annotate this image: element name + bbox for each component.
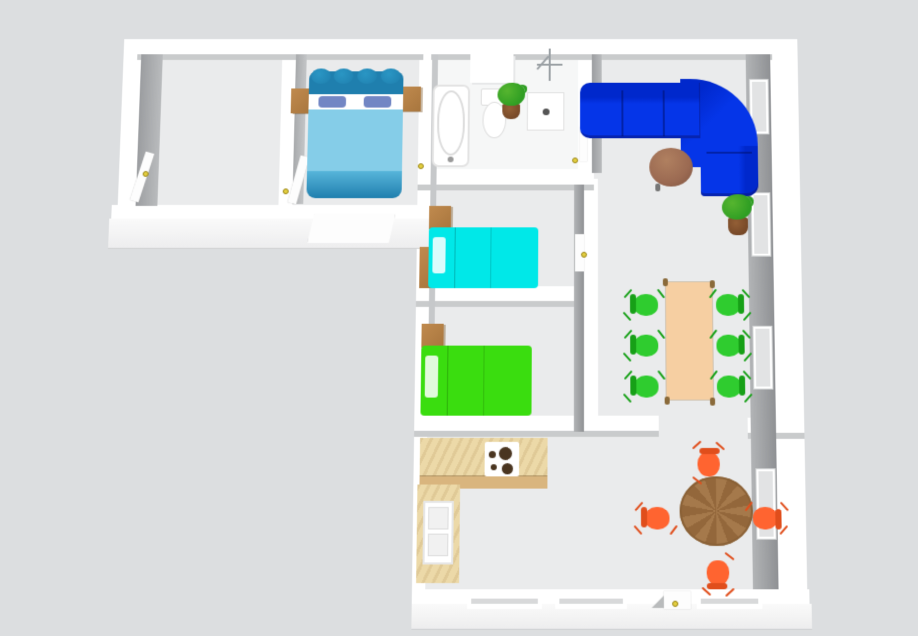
single-bed-cyan[interactable] bbox=[428, 227, 538, 288]
table-leg bbox=[710, 280, 715, 288]
wall-cabinet[interactable] bbox=[470, 54, 513, 82]
plant-leaves bbox=[722, 194, 752, 219]
wall-inner-face bbox=[414, 431, 659, 437]
sofa-seam bbox=[663, 90, 665, 136]
sink-basin bbox=[428, 507, 449, 530]
burner bbox=[499, 447, 512, 460]
pillow bbox=[364, 96, 392, 107]
sofa-seam bbox=[706, 152, 751, 154]
nightstand[interactable] bbox=[401, 87, 421, 112]
dining-table[interactable] bbox=[666, 282, 713, 399]
burner bbox=[491, 464, 497, 470]
dining-chair-green[interactable] bbox=[630, 292, 660, 318]
pillow bbox=[425, 356, 439, 398]
shower-drain bbox=[543, 109, 550, 116]
dining-chair-green[interactable] bbox=[630, 374, 660, 400]
bathtub[interactable] bbox=[432, 85, 470, 167]
window-south-3[interactable] bbox=[697, 596, 763, 609]
window-south-2[interactable] bbox=[555, 596, 627, 609]
wall-central-divider bbox=[584, 179, 598, 432]
breakfast-chair-orange[interactable] bbox=[705, 558, 732, 589]
dining-chair-green[interactable] bbox=[630, 333, 660, 359]
wall-kitchen-top bbox=[414, 416, 659, 431]
door-handle bbox=[581, 252, 587, 258]
potted-plant[interactable] bbox=[495, 83, 529, 125]
tub-basin bbox=[437, 90, 465, 155]
door-handle bbox=[418, 163, 424, 169]
window-pane bbox=[755, 329, 770, 387]
sofa-seam bbox=[621, 90, 623, 136]
bed-headboard bbox=[309, 71, 404, 96]
window-east-3[interactable] bbox=[752, 326, 773, 390]
door-open-exterior[interactable] bbox=[307, 214, 395, 243]
cooktop[interactable] bbox=[485, 442, 520, 476]
pillow bbox=[432, 237, 445, 273]
door-handle bbox=[672, 601, 678, 607]
breakfast-chair-orange[interactable] bbox=[751, 505, 782, 532]
plant-pot bbox=[728, 218, 748, 236]
breakfast-chair-orange[interactable] bbox=[641, 505, 672, 532]
sofa-arm-horizontal bbox=[580, 83, 700, 138]
dining-chair-green[interactable] bbox=[714, 333, 744, 359]
wall-top-exterior bbox=[131, 39, 774, 54]
window-south-1[interactable] bbox=[467, 596, 542, 609]
floor-plan-3d-view bbox=[0, 0, 918, 636]
kitchen-sink[interactable] bbox=[422, 501, 453, 565]
window-pane bbox=[559, 599, 623, 604]
shower-base[interactable] bbox=[527, 92, 565, 130]
door-south-entrance[interactable] bbox=[664, 591, 691, 609]
plant-leaves bbox=[497, 83, 525, 106]
window-pane bbox=[471, 599, 538, 604]
potted-plant[interactable] bbox=[719, 194, 757, 239]
kitchen-counter-top-run[interactable] bbox=[419, 438, 547, 489]
wall-bathroom-bottom bbox=[418, 169, 594, 184]
table-leg bbox=[663, 278, 668, 286]
wall-inner-face bbox=[574, 185, 584, 432]
plant-pot bbox=[502, 104, 520, 119]
bed-sheet-band bbox=[308, 94, 403, 109]
burner bbox=[502, 463, 513, 474]
wall-bedroom-divider bbox=[416, 286, 574, 301]
table-leg bbox=[665, 397, 670, 405]
door-handle bbox=[572, 158, 578, 164]
wall-inner-face bbox=[416, 301, 574, 307]
single-bed-green[interactable] bbox=[420, 346, 531, 416]
plan-3d bbox=[0, 11, 918, 636]
nightstand[interactable] bbox=[421, 324, 443, 348]
tub-tap bbox=[448, 157, 454, 163]
dining-chair-green[interactable] bbox=[714, 292, 744, 318]
wall-inner-face bbox=[137, 54, 423, 60]
breakfast-chair-orange[interactable] bbox=[695, 448, 722, 478]
wall-inner-face bbox=[418, 185, 594, 191]
bed-footer bbox=[306, 171, 402, 198]
pillow bbox=[318, 96, 346, 107]
nightstand[interactable] bbox=[429, 206, 451, 229]
coffee-table[interactable] bbox=[649, 148, 693, 187]
dining-chair-green[interactable] bbox=[715, 374, 746, 400]
round-table[interactable] bbox=[679, 476, 753, 546]
window-pane bbox=[701, 599, 758, 604]
table-leg bbox=[655, 184, 660, 192]
burner bbox=[489, 451, 496, 458]
bed-cover bbox=[307, 109, 403, 172]
towel-stand[interactable] bbox=[537, 49, 563, 83]
sink-basin bbox=[428, 534, 449, 557]
double-bed[interactable] bbox=[306, 71, 403, 198]
